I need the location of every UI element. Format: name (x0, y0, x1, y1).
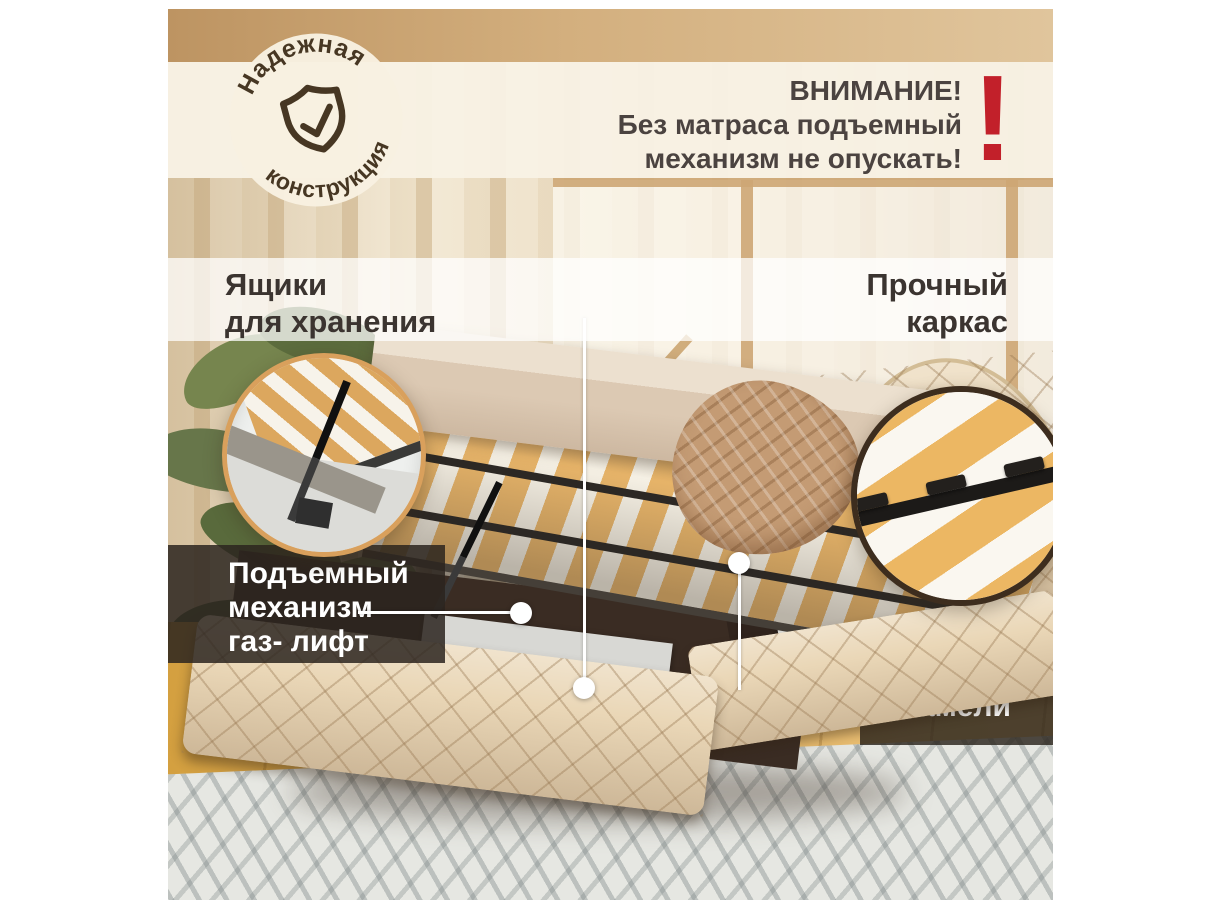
slats-detail-circle (851, 386, 1053, 606)
feature-frame-line1: Прочный (866, 266, 1008, 303)
callout-line-drawers (583, 318, 586, 688)
gas-lift-detail-circle (222, 353, 426, 557)
callout-line-gas-lift (358, 611, 521, 614)
bedroom-photo: Усиленные ламели Подъемный механизм газ-… (168, 0, 1053, 900)
callout-dot-gas-lift (510, 602, 532, 624)
product-card: Усиленные ламели Подъемный механизм газ-… (0, 0, 1221, 900)
feature-frame-line2: каркас (866, 303, 1008, 340)
feature-drawers-line1: Ящики (225, 266, 436, 303)
gas-lift-label-line3: газ- лифт (228, 625, 409, 659)
gas-lift-label-line1: Подъемный (228, 557, 409, 591)
detail-strut-bracket (295, 497, 333, 529)
callout-dot-drawers (573, 677, 595, 699)
callout-dot-slats (728, 552, 750, 574)
warning-line2: Без матраса подъемный (618, 108, 962, 142)
exclamation-icon: ! (972, 72, 1013, 164)
label-band-gas-lift: Подъемный механизм газ- лифт (168, 545, 445, 663)
callout-line-slats (738, 563, 741, 690)
feature-drawers-line2: для хранения (225, 303, 436, 340)
features-band: Ящики для хранения Прочный каркас (168, 258, 1053, 341)
gas-lift-label-line2: механизм (228, 591, 409, 625)
warning-line3: механизм не опускать! (618, 142, 962, 176)
top-margin (168, 0, 1053, 9)
warning-title: ВНИМАНИЕ! (618, 74, 962, 108)
